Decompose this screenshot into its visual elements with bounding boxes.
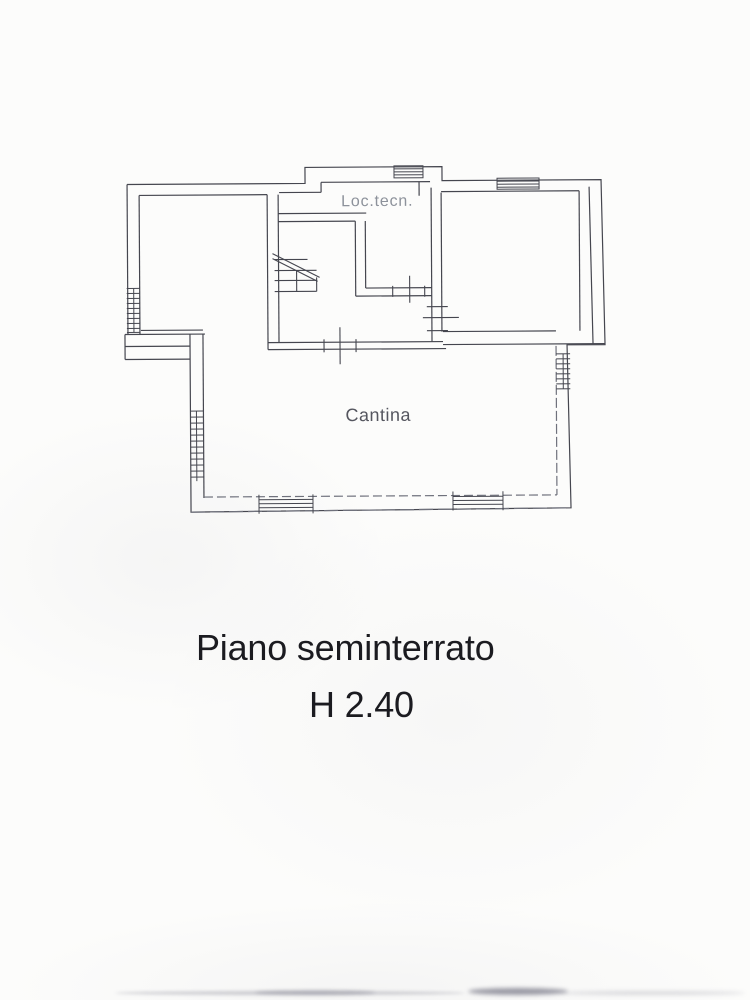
room-label-cantina: Cantina — [345, 405, 411, 425]
staircase — [272, 253, 319, 291]
room-label-loc-tecn: Loc.tecn. — [341, 193, 413, 210]
exterior-walls-faint — [190, 346, 571, 512]
window-marker — [394, 166, 423, 178]
window-marker — [127, 288, 140, 332]
door-marker — [324, 327, 356, 364]
floor-plan: Loc.tecn. Cantina — [0, 0, 750, 570]
window-marker — [190, 411, 203, 481]
door-marker — [423, 306, 459, 330]
window-markers — [126, 165, 571, 515]
window-marker — [453, 491, 503, 510]
door-markers — [324, 275, 460, 364]
floor-title: Piano seminterrato — [196, 627, 495, 669]
scanned-page: Loc.tecn. Cantina Piano seminterrato H 2… — [0, 0, 750, 1000]
scan-smudge — [468, 988, 568, 995]
floor-height: H 2.40 — [309, 684, 414, 726]
door-marker — [393, 276, 425, 303]
scan-smudge — [255, 990, 375, 995]
scan-smudge — [560, 991, 745, 995]
